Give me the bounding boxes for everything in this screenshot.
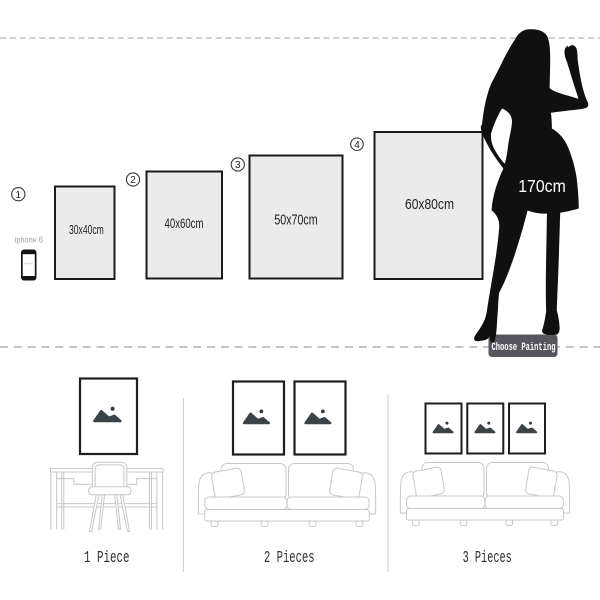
svg-text:30x40cm: 30x40cm	[69, 222, 104, 237]
svg-text:4: 4	[354, 140, 360, 151]
svg-text:2: 2	[130, 175, 136, 186]
svg-text:iphone 6: iphone 6	[15, 234, 43, 244]
svg-text:60x80cm: 60x80cm	[405, 197, 454, 213]
svg-text:50x70cm: 50x70cm	[274, 213, 317, 229]
svg-text:3 Pieces: 3 Pieces	[463, 548, 512, 567]
svg-text:2 Pieces: 2 Pieces	[264, 548, 315, 567]
svg-text:1: 1	[16, 190, 22, 201]
svg-text:170cm: 170cm	[518, 176, 566, 196]
svg-text:1 Piece: 1 Piece	[84, 548, 130, 567]
svg-text:3: 3	[235, 160, 241, 171]
svg-text:40x60cm: 40x60cm	[165, 215, 204, 231]
svg-text:Choose Painting: Choose Painting	[492, 342, 556, 354]
